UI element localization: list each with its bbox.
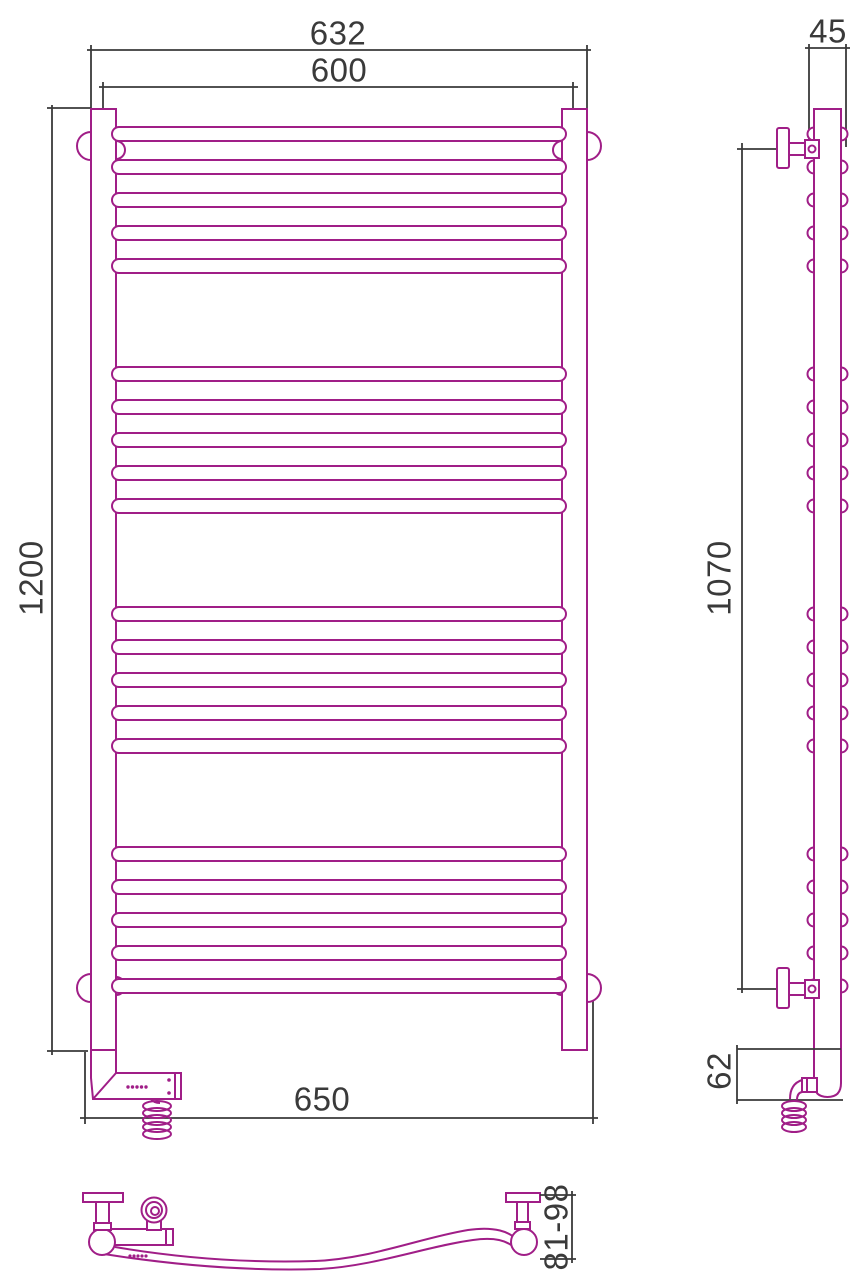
dimension-label-overall-width: 632 (310, 15, 367, 52)
led-dot (131, 1085, 134, 1088)
towel-rung (112, 880, 566, 894)
led-dot (126, 1085, 129, 1088)
bracket-stem (96, 1202, 109, 1223)
bottom-wall-bracket-right (506, 1193, 540, 1229)
towel-rung (112, 226, 566, 240)
towel-rung (112, 706, 566, 720)
towel-rung (112, 433, 566, 447)
towel-rung (112, 367, 566, 381)
towel-rung (112, 466, 566, 480)
front-view: 632 600 1200 650 (13, 15, 602, 1140)
screw-dot (167, 1078, 171, 1082)
bracket-arm (789, 143, 805, 155)
led-dot (136, 1254, 139, 1257)
towel-rail-drawing: 632 600 1200 650 (0, 0, 866, 1280)
dimension-label-bottom-offset: 62 (701, 1052, 738, 1090)
led-dot (132, 1254, 135, 1257)
towel-rung (112, 673, 566, 687)
towel-rung (112, 739, 566, 753)
led-dot (140, 1085, 143, 1088)
towel-rung (112, 913, 566, 927)
towel-rung (112, 847, 566, 861)
heater-housing (91, 1050, 181, 1099)
dimension-label-center-width: 600 (311, 52, 368, 89)
dimension-label-overall-height: 1200 (13, 540, 50, 615)
towel-rung (112, 193, 566, 207)
towel-rung (112, 946, 566, 960)
heater-unit-side (782, 1078, 817, 1132)
towel-rung (112, 160, 566, 174)
power-cable-coil-side (782, 1101, 806, 1132)
towel-rung (112, 499, 566, 513)
bracket-wall-plate (83, 1193, 123, 1202)
bracket-collar (515, 1222, 530, 1229)
front-rungs (112, 127, 566, 993)
heater-socket (802, 1078, 817, 1092)
dimension-label-bracket-span: 1070 (701, 540, 738, 615)
heater-unit-front (91, 1050, 181, 1139)
bottom-view: 81-98 (83, 1184, 576, 1271)
technical-drawing-page: 632 600 1200 650 (0, 0, 866, 1280)
bracket-wall-plate (777, 128, 789, 168)
dimension-label-wall-distance: 81-98 (538, 1184, 575, 1271)
bracket-arm (789, 983, 805, 995)
dimension-label-depth: 45 (809, 13, 847, 50)
side-collector-tube (814, 109, 841, 1097)
cable-loop (143, 1129, 171, 1139)
bottom-dimensions: 81-98 (538, 1184, 577, 1271)
left-collector-section (89, 1229, 115, 1255)
towel-rung (112, 259, 566, 273)
dimension-label-bottom-width: 650 (294, 1081, 351, 1118)
cable-elbow-inner (797, 1092, 802, 1100)
towel-rung (112, 979, 566, 993)
right-collector-section (511, 1229, 537, 1255)
heater-housing-bottom (109, 1229, 173, 1245)
bracket-connector (805, 140, 819, 158)
towel-rung (112, 400, 566, 414)
led-dot (144, 1085, 147, 1088)
right-collector-tube (562, 109, 587, 1050)
cable-loop (782, 1122, 806, 1132)
cable-elbow-outer (790, 1080, 802, 1099)
bracket-wall-plate (777, 968, 789, 1008)
bow-rung-upper-edge (115, 1229, 517, 1262)
bottom-wall-bracket-left (83, 1193, 123, 1230)
bracket-wall-plate (506, 1193, 540, 1202)
side-wall-bracket-bottom (777, 968, 819, 1008)
towel-rung (112, 607, 566, 621)
led-dot (135, 1085, 138, 1088)
side-view: 45 1070 62 (701, 13, 851, 1133)
towel-rung (112, 640, 566, 654)
bracket-collar (94, 1223, 111, 1230)
led-dot (140, 1254, 143, 1257)
led-dot (144, 1254, 147, 1257)
screw-dot (167, 1091, 171, 1095)
left-collector-tube (91, 109, 116, 1050)
towel-rung (112, 127, 566, 141)
bracket-connector (805, 980, 819, 998)
led-dot (128, 1254, 131, 1257)
power-cable-coil-front (143, 1099, 171, 1139)
bracket-stem (517, 1202, 528, 1222)
cable-coil-end-view (142, 1198, 167, 1231)
